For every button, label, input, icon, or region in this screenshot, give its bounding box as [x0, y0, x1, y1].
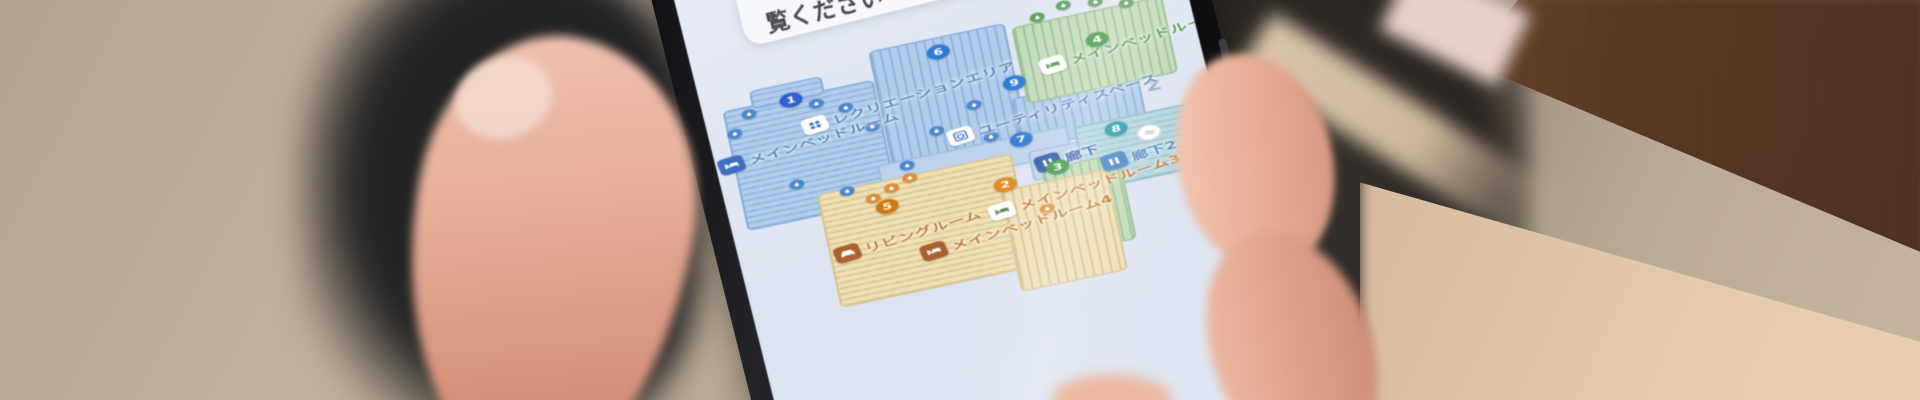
photo-scene: 覧ください	[0, 0, 1920, 400]
water-drop-icon	[1087, 0, 1104, 8]
water-drop-icon	[1055, 0, 1072, 12]
